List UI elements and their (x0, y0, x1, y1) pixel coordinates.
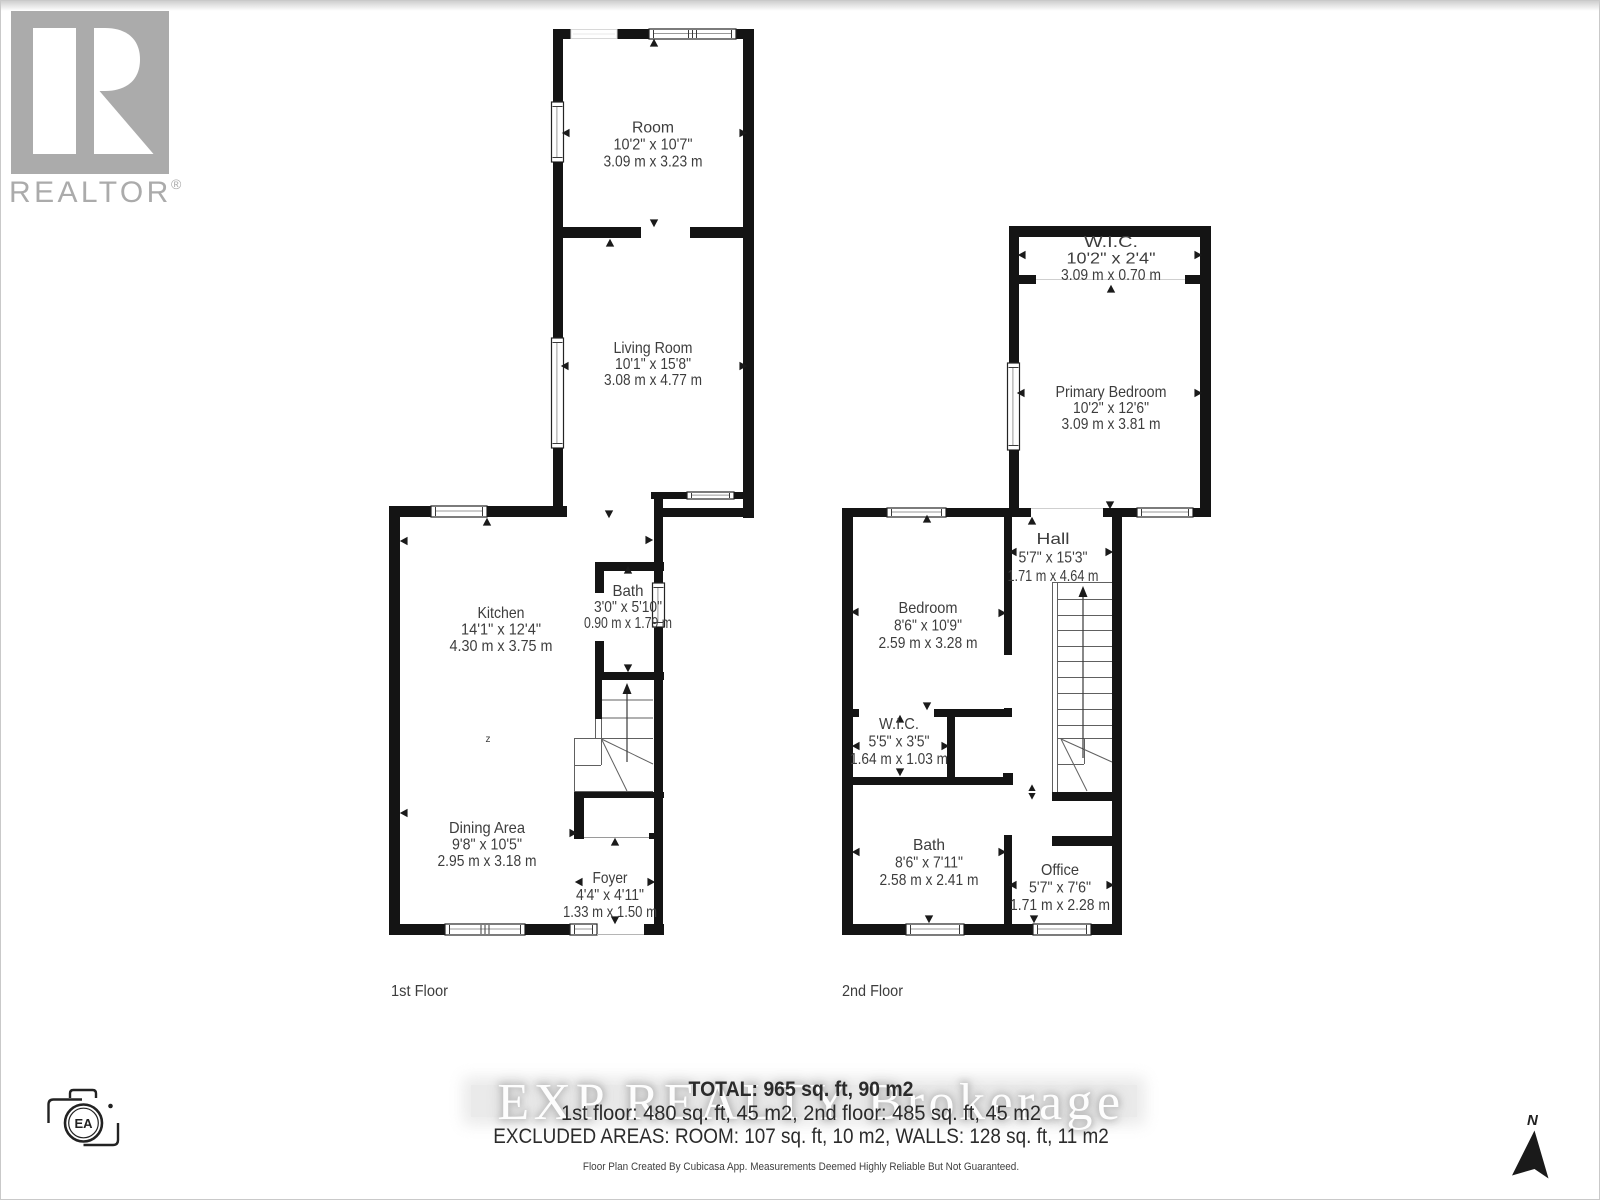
svg-text:3.09 m x 3.81 m: 3.09 m x 3.81 m (1062, 416, 1161, 433)
svg-text:5'5" x 3'5": 5'5" x 3'5" (869, 734, 930, 751)
svg-text:REALTOR: REALTOR (9, 176, 172, 209)
svg-text:Dining Area: Dining Area (449, 820, 525, 837)
svg-text:Bedroom: Bedroom (899, 600, 958, 617)
svg-text:Kitchen: Kitchen (478, 605, 525, 622)
svg-text:3.09 m x 3.23 m: 3.09 m x 3.23 m (604, 154, 703, 171)
svg-text:2nd Floor: 2nd Floor (842, 983, 903, 1000)
svg-text:10'1" x 15'8": 10'1" x 15'8" (615, 356, 691, 373)
svg-text:Hall: Hall (1037, 531, 1070, 548)
svg-text:2.59 m x 3.28 m: 2.59 m x 3.28 m (879, 635, 978, 652)
svg-text:W.I.C.: W.I.C. (1084, 234, 1138, 251)
svg-text:Bath: Bath (613, 583, 644, 600)
svg-text:Foyer: Foyer (593, 870, 629, 887)
svg-text:Office: Office (1041, 862, 1079, 879)
svg-text:8'6" x 10'9": 8'6" x 10'9" (894, 618, 962, 635)
svg-text:1.64 m x 1.03 m: 1.64 m x 1.03 m (850, 751, 948, 768)
svg-text:3'0" x 5'10": 3'0" x 5'10" (594, 599, 662, 616)
svg-text:1.71 m x 2.28 m: 1.71 m x 2.28 m (1010, 897, 1110, 914)
svg-text:z: z (486, 734, 491, 745)
svg-text:14'1" x 12'4": 14'1" x 12'4" (461, 622, 541, 639)
svg-text:2.95 m x 3.18 m: 2.95 m x 3.18 m (438, 853, 537, 870)
svg-text:2.58 m x 2.41 m: 2.58 m x 2.41 m (880, 872, 979, 889)
svg-text:10'2" x 2'4": 10'2" x 2'4" (1067, 251, 1156, 268)
svg-text:10'2" x 10'7": 10'2" x 10'7" (614, 137, 693, 154)
svg-text:W.I.C.: W.I.C. (879, 716, 919, 733)
svg-text:Living Room: Living Room (614, 340, 693, 357)
svg-text:10'2" x 12'6": 10'2" x 12'6" (1073, 400, 1149, 417)
svg-text:0.90 m x 1.79 m: 0.90 m x 1.79 m (584, 615, 672, 632)
svg-text:3.09 m x 0.70 m: 3.09 m x 0.70 m (1061, 267, 1161, 284)
svg-text:1.33 m x 1.50 m: 1.33 m x 1.50 m (563, 904, 657, 921)
svg-text:4'4" x 4'11": 4'4" x 4'11" (576, 887, 644, 904)
svg-text:Primary Bedroom: Primary Bedroom (1056, 384, 1167, 401)
svg-text:®: ® (171, 176, 182, 192)
svg-text:4.30 m x 3.75 m: 4.30 m x 3.75 m (450, 638, 553, 655)
svg-text:9'8" x 10'5": 9'8" x 10'5" (452, 837, 522, 854)
svg-text:1.71 m x 4.64 m: 1.71 m x 4.64 m (1008, 568, 1099, 585)
svg-text:Room: Room (632, 120, 674, 137)
svg-text:1st Floor: 1st Floor (391, 983, 448, 1000)
svg-text:3.08 m x 4.77 m: 3.08 m x 4.77 m (604, 372, 702, 389)
svg-text:5'7" x 7'6": 5'7" x 7'6" (1029, 880, 1091, 897)
svg-text:5'7" x 15'3": 5'7" x 15'3" (1019, 550, 1088, 567)
svg-text:Bath: Bath (913, 837, 945, 854)
svg-text:8'6" x 7'11": 8'6" x 7'11" (895, 855, 963, 872)
